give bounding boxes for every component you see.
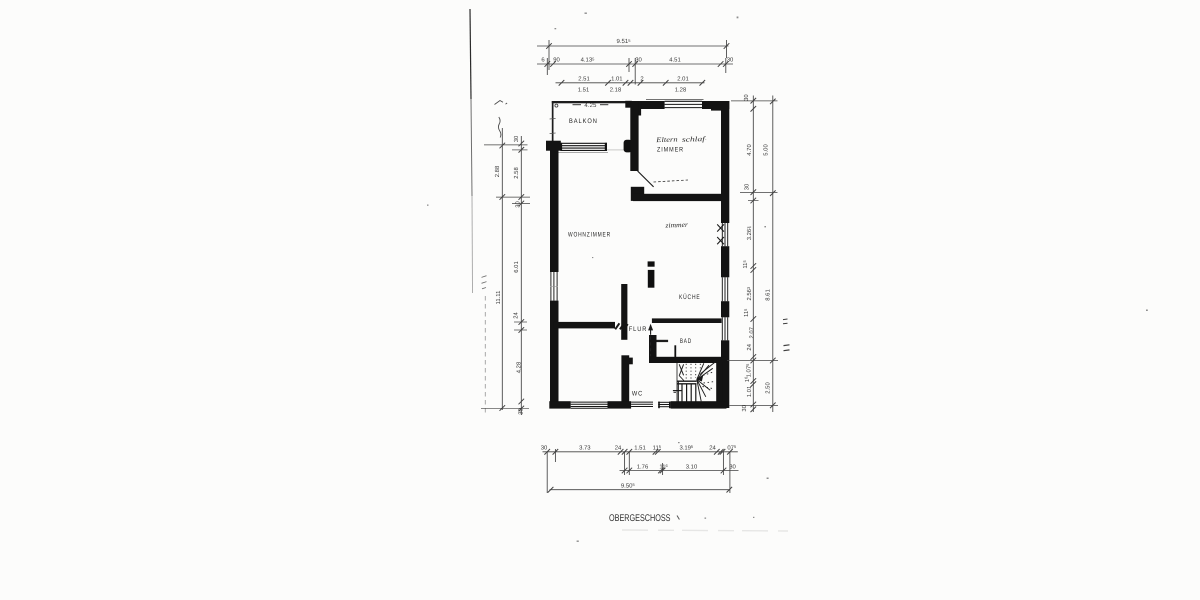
svg-text:WOHNZIMMER: WOHNZIMMER xyxy=(568,232,611,239)
svg-text:Eltern: Eltern xyxy=(655,136,679,145)
svg-text:24: 24 xyxy=(709,445,716,452)
svg-text:1.51: 1.51 xyxy=(578,87,589,94)
svg-text:30: 30 xyxy=(513,135,520,142)
svg-text:2.18: 2.18 xyxy=(610,87,622,94)
svg-text:30: 30 xyxy=(744,183,751,190)
svg-text:30: 30 xyxy=(518,408,525,415)
svg-text:2.88: 2.88 xyxy=(494,165,501,177)
svg-text:30: 30 xyxy=(743,94,750,101)
svg-text:3.73: 3.73 xyxy=(579,445,591,452)
svg-text:WC: WC xyxy=(632,391,643,398)
svg-text:4.70: 4.70 xyxy=(746,144,753,156)
svg-text:30: 30 xyxy=(741,404,748,411)
svg-text:30: 30 xyxy=(541,445,548,452)
svg-text:30: 30 xyxy=(635,57,642,64)
svg-text:2.51: 2.51 xyxy=(578,75,589,82)
svg-text:4.28: 4.28 xyxy=(515,361,522,373)
svg-text:24: 24 xyxy=(615,445,622,452)
svg-text:2.01: 2.01 xyxy=(677,75,688,82)
svg-text:30: 30 xyxy=(729,463,736,470)
svg-text:30: 30 xyxy=(727,57,734,64)
svg-text:6.01: 6.01 xyxy=(513,261,520,272)
svg-text:24: 24 xyxy=(746,343,753,350)
svg-text:1.76: 1.76 xyxy=(637,463,649,470)
svg-text:1.28: 1.28 xyxy=(675,87,687,94)
svg-text:24: 24 xyxy=(513,312,520,319)
svg-text:BAD: BAD xyxy=(680,338,692,345)
svg-text:BALKON: BALKON xyxy=(569,118,598,125)
svg-text:1.01: 1.01 xyxy=(746,386,753,397)
svg-text:4.25: 4.25 xyxy=(584,102,597,109)
svg-text:KÜCHE: KÜCHE xyxy=(679,293,701,301)
svg-text:FLUR: FLUR xyxy=(629,326,648,333)
svg-text:zimmer: zimmer xyxy=(664,221,688,230)
svg-text:OBERGESCHOSS: OBERGESCHOSS xyxy=(609,513,671,524)
svg-text:8.61: 8.61 xyxy=(765,289,772,300)
svg-text:ZIMMER: ZIMMER xyxy=(657,147,684,154)
svg-text:2.07: 2.07 xyxy=(748,327,755,338)
svg-text:90: 90 xyxy=(553,57,560,64)
svg-text:1.01: 1.01 xyxy=(611,75,622,82)
svg-text:11.11: 11.11 xyxy=(495,291,502,305)
svg-text:5.00: 5.00 xyxy=(762,144,769,156)
svg-text:30: 30 xyxy=(515,201,522,208)
svg-text:4.51: 4.51 xyxy=(669,57,680,64)
svg-text:schlaf·: schlaf· xyxy=(682,135,707,144)
svg-text:2: 2 xyxy=(640,75,643,82)
svg-text:1.51: 1.51 xyxy=(634,445,645,452)
svg-text:2.50: 2.50 xyxy=(765,382,772,394)
svg-text:2.58: 2.58 xyxy=(513,167,520,179)
svg-text:3.10: 3.10 xyxy=(686,463,698,470)
